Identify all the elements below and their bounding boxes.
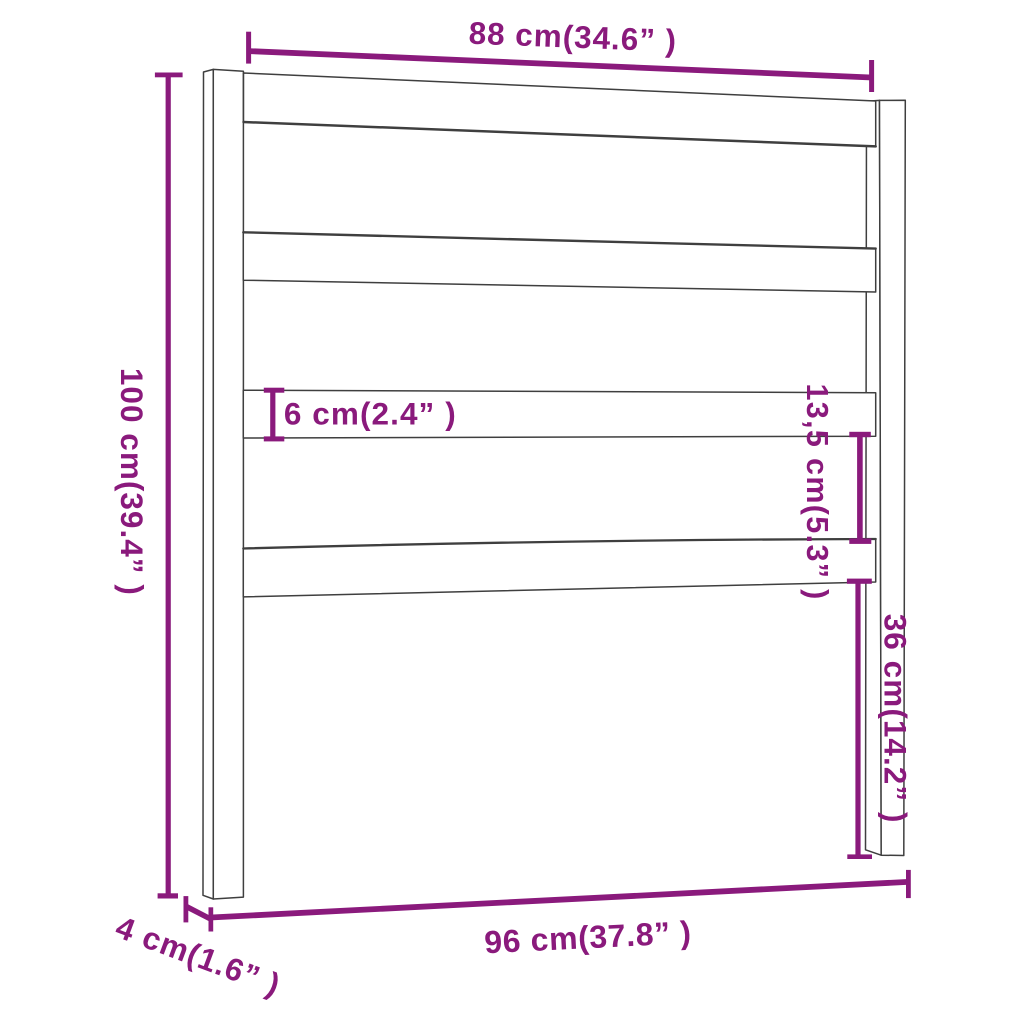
svg-text:36 cm(14.2” ): 36 cm(14.2” ) [877, 614, 913, 823]
svg-text:13,5 cm(5.3” ): 13,5 cm(5.3” ) [800, 383, 834, 599]
svg-text:6 cm(2.4” ): 6 cm(2.4” ) [284, 396, 456, 432]
svg-text:100 cm(39.4” ): 100 cm(39.4” ) [114, 368, 150, 595]
